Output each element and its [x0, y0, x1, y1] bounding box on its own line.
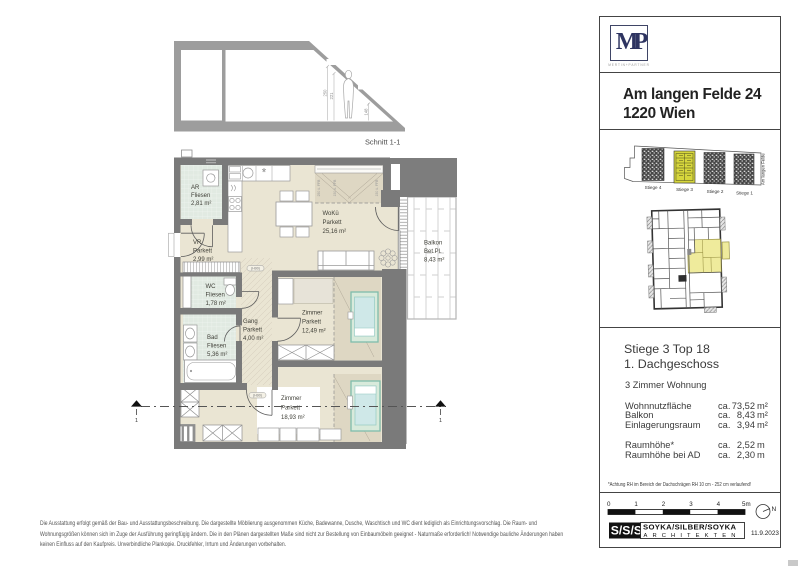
- svg-text:VR: VR: [193, 240, 202, 246]
- svg-text:18,93 m²: 18,93 m²: [281, 415, 305, 421]
- svg-text:S/S/S: S/S/S: [611, 524, 642, 538]
- svg-text:1: 1: [439, 418, 442, 424]
- svg-text:Am langen Felde: Am langen Felde: [761, 153, 766, 185]
- svg-text:Zimmer: Zimmer: [302, 311, 322, 317]
- svg-text:250 ü. FFB: 250 ü. FFB: [317, 179, 321, 197]
- svg-text:N: N: [772, 506, 777, 513]
- svg-text:Parkett: Parkett: [302, 320, 321, 326]
- svg-text:SOYKA/SILBER/SOYKA: SOYKA/SILBER/SOYKA: [643, 523, 737, 532]
- svg-text:Parkett: Parkett: [243, 328, 262, 334]
- svg-text:11.9.2023: 11.9.2023: [751, 530, 779, 537]
- svg-text:Stiege 3: Stiege 3: [676, 187, 693, 192]
- svg-text:Gang: Gang: [243, 319, 258, 325]
- svg-text:5,36 m²: 5,36 m²: [207, 352, 227, 358]
- svg-text:8,43 m²: 8,43 m²: [424, 258, 444, 264]
- svg-text:2,99 m²: 2,99 m²: [193, 257, 213, 263]
- svg-text:WoKü: WoKü: [323, 211, 339, 217]
- svg-text:Zimmer: Zimmer: [281, 396, 301, 402]
- svg-text:5m: 5m: [742, 501, 751, 508]
- svg-text:WC: WC: [206, 284, 217, 290]
- svg-text:AR: AR: [191, 185, 200, 191]
- svg-text:ARCHITEKTEN: ARCHITEKTEN: [644, 533, 741, 539]
- svg-text:Fliesen: Fliesen: [207, 344, 226, 350]
- svg-text:2,81 m²: 2,81 m²: [191, 201, 211, 207]
- svg-text:4: 4: [717, 501, 721, 508]
- svg-text:(H90): (H90): [251, 267, 260, 271]
- svg-text:Schnitt 1-1: Schnitt 1-1: [365, 138, 400, 147]
- svg-text:*: *: [262, 168, 267, 180]
- svg-text:4,00 m²: 4,00 m²: [243, 336, 263, 342]
- svg-text:12,49 m²: 12,49 m²: [302, 329, 326, 335]
- svg-text:Parkett: Parkett: [193, 249, 212, 255]
- svg-text:3: 3: [689, 501, 693, 508]
- svg-text:Parkett: Parkett: [323, 220, 342, 226]
- svg-text:Bad: Bad: [207, 335, 218, 341]
- svg-text:25,16 m²: 25,16 m²: [323, 229, 347, 235]
- svg-text:(H90): (H90): [253, 394, 262, 398]
- svg-text:148: 148: [364, 108, 369, 116]
- svg-text:Fliesen: Fliesen: [191, 193, 210, 199]
- svg-text:Stiege 2: Stiege 2: [707, 189, 724, 194]
- svg-text:Fliesen: Fliesen: [206, 293, 225, 299]
- svg-text:1,78 m²: 1,78 m²: [206, 301, 226, 307]
- svg-text:0: 0: [607, 501, 611, 508]
- svg-text:1: 1: [634, 501, 638, 508]
- svg-text:1: 1: [135, 418, 138, 424]
- svg-text:150 ü. FFB: 150 ü. FFB: [375, 179, 379, 197]
- svg-text:250: 250: [323, 89, 328, 97]
- svg-text:221: 221: [329, 92, 334, 100]
- svg-text:Bet.Pl.: Bet.Pl.: [424, 249, 442, 255]
- svg-text:Stiege 1: Stiege 1: [736, 191, 753, 196]
- svg-text:Stiege 4: Stiege 4: [645, 185, 662, 190]
- svg-text:150 ü. FFB: 150 ü. FFB: [333, 179, 337, 197]
- svg-text:Balkon: Balkon: [424, 241, 442, 247]
- svg-text:2: 2: [662, 501, 666, 508]
